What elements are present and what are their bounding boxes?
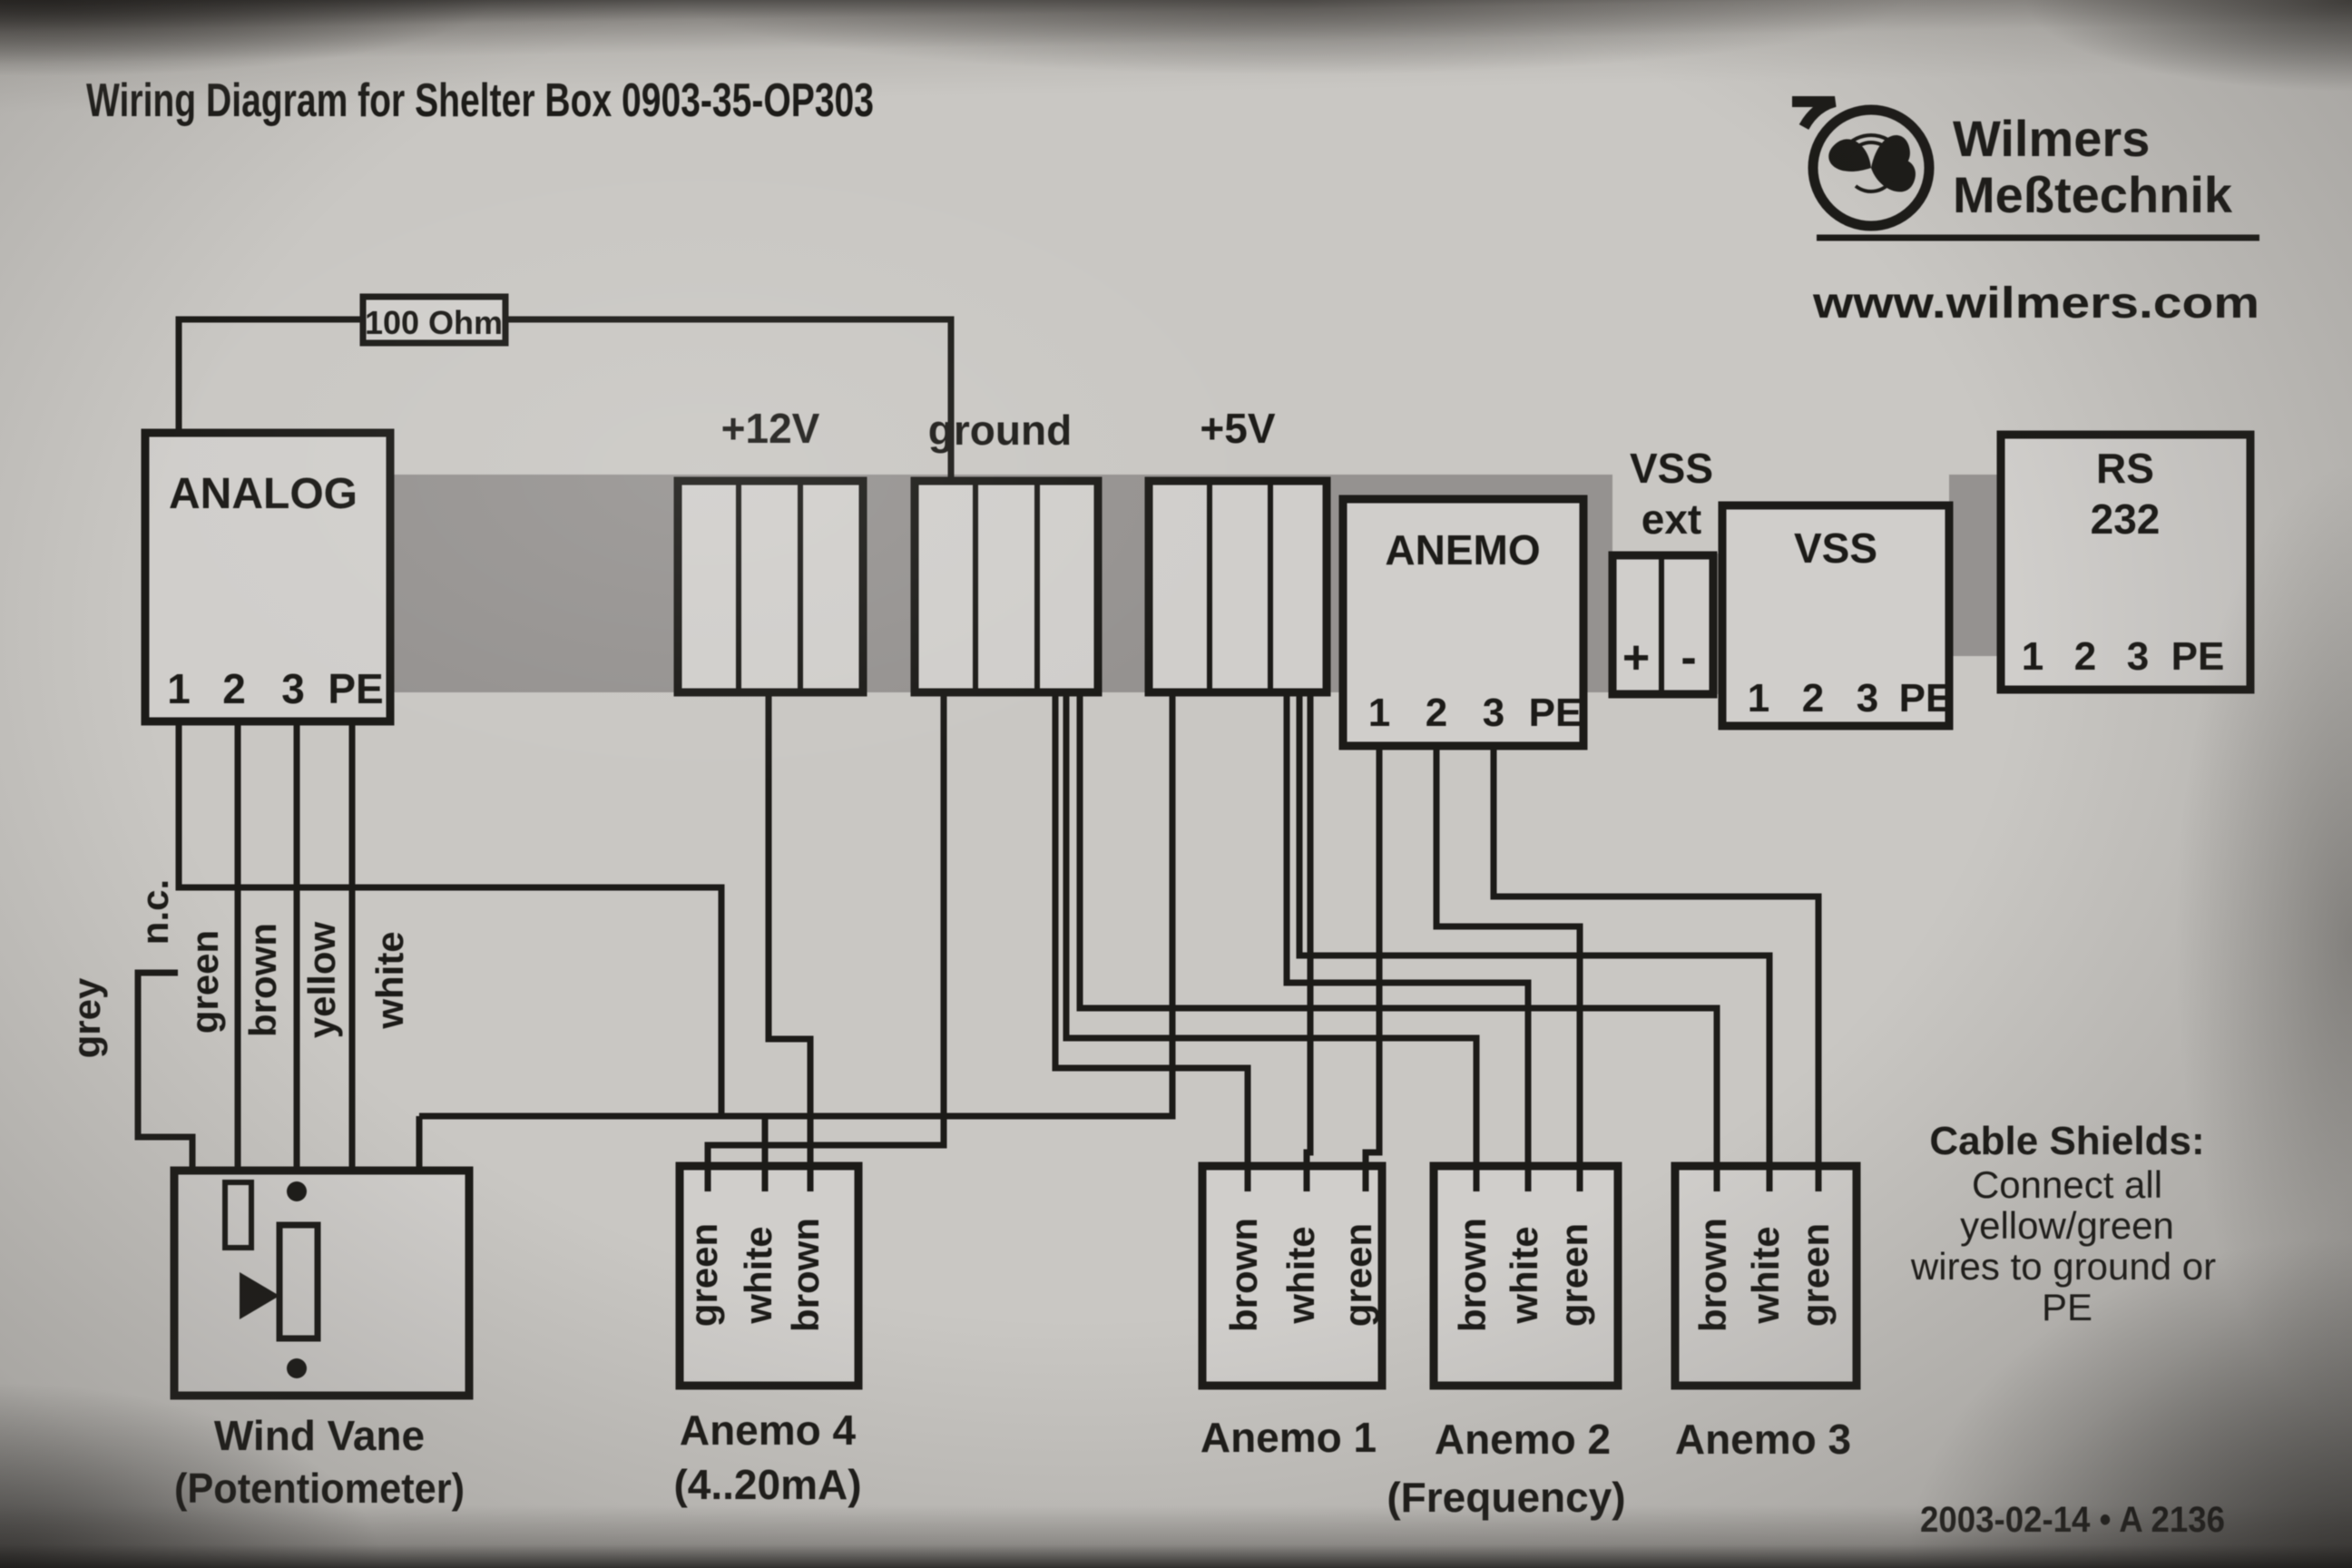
junction-dot bbox=[287, 1181, 307, 1201]
footer-date-reference: 2003-02-14 • A 2136 bbox=[1920, 1500, 2225, 1540]
wiper-resistor bbox=[225, 1182, 251, 1248]
wire-5v-anemo3 bbox=[1299, 692, 1769, 1191]
anemo4-caption-1: Anemo 4 bbox=[680, 1406, 857, 1454]
anemo4-caption-2: (4..20mA) bbox=[673, 1461, 861, 1508]
anemo3-caption: Anemo 3 bbox=[1675, 1416, 1851, 1463]
anemo1-caption: Anemo 1 bbox=[1200, 1414, 1377, 1461]
component-boxes bbox=[145, 297, 2250, 1396]
vss-label: VSS bbox=[1794, 524, 1877, 572]
logo-name-line2: Meßtechnik bbox=[1953, 166, 2233, 223]
anemo4-wire-labels: green white brown bbox=[682, 1218, 827, 1332]
wire-anemo-t1 bbox=[1366, 746, 1379, 1191]
wire-anemo-t2 bbox=[1436, 746, 1580, 1191]
cable-shields-note: Cable Shields: Connect all yellow/green … bbox=[1910, 1119, 2216, 1328]
anemo3-white-label: white bbox=[1744, 1226, 1787, 1324]
rs232-label-2: 232 bbox=[2091, 495, 2161, 543]
white-wire-label: white bbox=[368, 931, 411, 1029]
wire-analog1 bbox=[179, 721, 721, 1116]
vss-terminal-2: 2 bbox=[1802, 676, 1824, 720]
wind-vane-box bbox=[174, 1171, 469, 1396]
analog-terminal-1: 1 bbox=[167, 665, 191, 712]
rs232-label-1: RS bbox=[2096, 445, 2154, 492]
anemo2-white-label: white bbox=[1503, 1226, 1545, 1324]
vss-terminal-3: 3 bbox=[1857, 676, 1878, 720]
anemo3-wire-labels: brown white green bbox=[1691, 1218, 1837, 1332]
anemo2-caption-2: (Frequency) bbox=[1387, 1474, 1625, 1521]
potentiometer-body bbox=[279, 1225, 318, 1338]
anemo-terminal-pe: PE bbox=[1529, 691, 1583, 735]
anemo-label: ANEMO bbox=[1385, 526, 1540, 573]
anemo2-green-label: green bbox=[1553, 1223, 1595, 1327]
page-title: Wiring Diagram for Shelter Box 0903-35-O… bbox=[86, 74, 874, 127]
ground-terminal-block bbox=[915, 481, 1098, 692]
vss-ext-plus: + bbox=[1622, 632, 1650, 684]
plus5v-label: +5V bbox=[1200, 405, 1275, 452]
brown-wire-label: brown bbox=[241, 923, 284, 1037]
wire-common-horizontal bbox=[419, 692, 1172, 1116]
vss-ext-minus: - bbox=[1681, 632, 1696, 684]
analog-label: ANALOG bbox=[169, 470, 358, 518]
vss-ext-label-1: VSS bbox=[1630, 445, 1713, 492]
anemo2-stubs bbox=[1476, 926, 1580, 1191]
anemo1-wire-labels: brown white green bbox=[1222, 1218, 1379, 1332]
rs232-terminal-2: 2 bbox=[2074, 634, 2096, 679]
anemo3-brown-label: brown bbox=[1691, 1218, 1734, 1332]
ground-label: ground bbox=[928, 407, 1072, 454]
anemo4-white-label: white bbox=[737, 1226, 779, 1324]
cable-shields-line3: wires to ground or bbox=[1910, 1245, 2216, 1288]
cable-shields-heading: Cable Shields: bbox=[1929, 1119, 2204, 1163]
resistor-label: 100 Ohm bbox=[365, 304, 503, 341]
vss-ext-label-2: ext bbox=[1641, 495, 1701, 543]
yellow-wire-label: yellow bbox=[300, 921, 343, 1038]
anemo-terminal-2: 2 bbox=[1426, 691, 1447, 735]
junction-dot bbox=[287, 1358, 307, 1378]
cable-shields-line4: PE bbox=[2042, 1286, 2092, 1328]
rs232-terminal-3: 3 bbox=[2127, 634, 2149, 679]
anemo4-brown-label: brown bbox=[784, 1218, 827, 1332]
wire-5v-anemo1 bbox=[1307, 692, 1310, 1191]
anemo1-brown-label: brown bbox=[1222, 1218, 1265, 1332]
analog-terminal-3: 3 bbox=[281, 665, 305, 712]
anemo-terminal-3: 3 bbox=[1483, 691, 1504, 735]
anemometer-propeller-logo-icon bbox=[1792, 102, 1929, 226]
plus12v-terminal-block bbox=[678, 481, 863, 692]
logo-website: www.wilmers.com bbox=[1812, 279, 2259, 328]
wilmers-logo: Wilmers Meßtechnik www.wilmers.com bbox=[1792, 102, 2259, 328]
green-wire-label: green bbox=[183, 930, 226, 1034]
vss-terminal-1: 1 bbox=[1748, 676, 1769, 720]
anemo1-white-label: white bbox=[1279, 1226, 1322, 1324]
cable-shields-line1: Connect all bbox=[1972, 1163, 2162, 1206]
analog-terminal-2: 2 bbox=[222, 665, 246, 712]
plus12v-label: +12V bbox=[721, 405, 820, 452]
grey-wire-label: grey bbox=[65, 977, 108, 1058]
anemo2-wire-labels: brown white green bbox=[1451, 1218, 1595, 1332]
vss-terminal-pe: PE bbox=[1899, 676, 1953, 720]
anemo3-green-label: green bbox=[1794, 1223, 1837, 1327]
logo-name-line1: Wilmers bbox=[1953, 110, 2150, 167]
diagram-canvas: Wiring Diagram for Shelter Box 0903-35-O… bbox=[0, 0, 2352, 1568]
nc-label: n.c. bbox=[133, 879, 176, 945]
anemo-terminal-1: 1 bbox=[1368, 691, 1390, 735]
wind-vane-caption-2: (Potentiometer) bbox=[174, 1465, 465, 1512]
anemo4-green-label: green bbox=[682, 1223, 725, 1327]
photographed-wiring-diagram: Wiring Diagram for Shelter Box 0903-35-O… bbox=[0, 0, 2352, 1568]
anemo2-brown-label: brown bbox=[1451, 1218, 1494, 1332]
wind-vane-caption-1: Wind Vane bbox=[214, 1412, 425, 1459]
rs232-terminal-pe: PE bbox=[2171, 634, 2225, 679]
anemo3-stubs bbox=[1717, 897, 1818, 1191]
plus5v-terminal-block bbox=[1149, 481, 1327, 692]
anemo2-caption: Anemo 2 bbox=[1435, 1416, 1611, 1463]
analog-terminal-pe: PE bbox=[328, 665, 383, 712]
rs232-terminal-1: 1 bbox=[2022, 634, 2043, 679]
cable-shields-line2: yellow/green bbox=[1960, 1204, 2174, 1247]
anemo1-green-label: green bbox=[1337, 1223, 1379, 1327]
